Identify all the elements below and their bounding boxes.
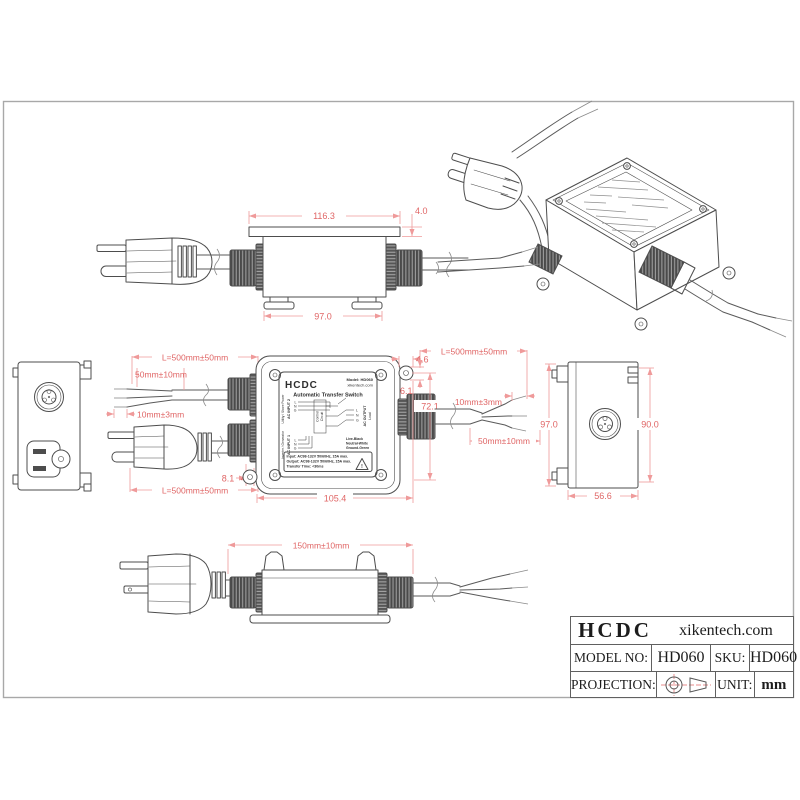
mount-ear — [243, 470, 257, 484]
website-text: xikentech.com — [659, 622, 793, 640]
model-no-label: MODEL NO: — [571, 645, 652, 671]
gland-collar — [398, 399, 407, 435]
unit-value: mm — [755, 672, 793, 698]
title-block-projection-row: PROJECTION: UNIT: mm — [571, 672, 793, 698]
svg-text:G: G — [294, 409, 297, 413]
mount-ear — [537, 278, 549, 290]
svg-text:Ground-Green: Ground-Green — [346, 446, 369, 450]
box-body — [262, 570, 378, 615]
cable-gland — [228, 378, 252, 410]
svg-text:Model: HD060: Model: HD060 — [347, 377, 374, 382]
svg-text:Input: AC98-132V 50/60Hz, 15A: Input: AC98-132V 50/60Hz, 15A max. — [287, 455, 349, 459]
svg-text:50mm±10mm: 50mm±10mm — [135, 370, 187, 380]
mount-ear — [723, 267, 735, 279]
svg-text:116.3: 116.3 — [313, 211, 335, 221]
title-block-model-row: MODEL NO: HD060 SKU: HD060 — [571, 645, 793, 672]
sku-value: HD060 — [750, 645, 797, 671]
svg-text:90.0: 90.0 — [641, 420, 659, 430]
svg-text:6.1: 6.1 — [400, 386, 413, 396]
svg-text:105.4: 105.4 — [324, 494, 347, 504]
svg-text:Transfer Time: <30ms: Transfer Time: <30ms — [287, 465, 324, 469]
gland-collar — [378, 573, 387, 612]
mount-ear — [399, 366, 413, 380]
svg-text:HCDC: HCDC — [285, 380, 318, 391]
svg-text:Output: AC98-132V 50/60Hz, 15A: Output: AC98-132V 50/60Hz, 15A max. — [287, 460, 352, 464]
projection-symbol — [657, 672, 716, 698]
cable-gland — [396, 250, 422, 286]
mount-foot — [352, 302, 382, 309]
svg-text:AC INPUT 2: AC INPUT 2 — [287, 399, 291, 419]
svg-text:Load: Load — [368, 412, 372, 420]
sku-label: SKU: — [711, 645, 750, 671]
first-angle-projection-icon — [660, 673, 712, 697]
cable-gland — [230, 577, 256, 608]
svg-text:L=500mm±50mm: L=500mm±50mm — [162, 353, 228, 363]
svg-text:56.6: 56.6 — [594, 491, 612, 501]
svg-text:4.0: 4.0 — [415, 206, 428, 216]
box-body — [263, 237, 386, 298]
svg-text:G: G — [294, 447, 297, 451]
left-end-view — [13, 361, 91, 491]
brand-logo: HCDC — [571, 618, 659, 643]
svg-text:Automatic Transfer Switch: Automatic Transfer Switch — [293, 393, 363, 399]
unit-label: UNIT: — [716, 672, 755, 698]
cable-gland — [230, 250, 256, 286]
svg-text:Live-Black: Live-Black — [346, 437, 363, 441]
svg-text:L: L — [356, 409, 358, 413]
title-block-header: HCDC xikentech.com — [571, 617, 793, 645]
svg-text:G: G — [356, 419, 359, 423]
cable-gland — [228, 424, 252, 456]
svg-text:xikentech.com: xikentech.com — [347, 383, 373, 388]
svg-text:Neutral-White: Neutral-White — [346, 442, 368, 446]
svg-text:10mm±3mm: 10mm±3mm — [137, 410, 184, 420]
lid-flange — [249, 227, 400, 237]
cable-gland — [387, 577, 413, 608]
svg-text:150mm±10mm: 150mm±10mm — [293, 541, 350, 551]
mount-foot — [264, 302, 294, 309]
model-no-value: HD060 — [652, 645, 711, 671]
svg-text:L=500mm±50mm: L=500mm±50mm — [441, 347, 507, 357]
svg-text:Circuit: Circuit — [320, 412, 324, 421]
svg-text:10mm±3mm: 10mm±3mm — [455, 397, 502, 407]
svg-text:Utility / Shore Power: Utility / Shore Power — [281, 394, 285, 424]
title-block: HCDC xikentech.com MODEL NO: HD060 SKU: … — [570, 616, 794, 698]
svg-text:97.0: 97.0 — [314, 312, 332, 322]
gland-collar — [386, 244, 396, 290]
svg-text:8.1: 8.1 — [222, 474, 235, 484]
svg-text:L=500mm±50mm: L=500mm±50mm — [162, 486, 228, 496]
projection-label: PROJECTION: — [571, 672, 657, 698]
svg-text:AC OUTPUT: AC OUTPUT — [363, 405, 367, 427]
mount-flange — [250, 615, 390, 623]
svg-text:97.0: 97.0 — [540, 420, 558, 430]
svg-text:72.1: 72.1 — [421, 402, 439, 412]
svg-text:4.6: 4.6 — [416, 355, 429, 365]
drawing-sheet: 116.3 4.0 97.0 — [0, 0, 800, 800]
svg-text:50mm±10mm: 50mm±10mm — [478, 436, 530, 446]
mount-ear — [635, 318, 647, 330]
